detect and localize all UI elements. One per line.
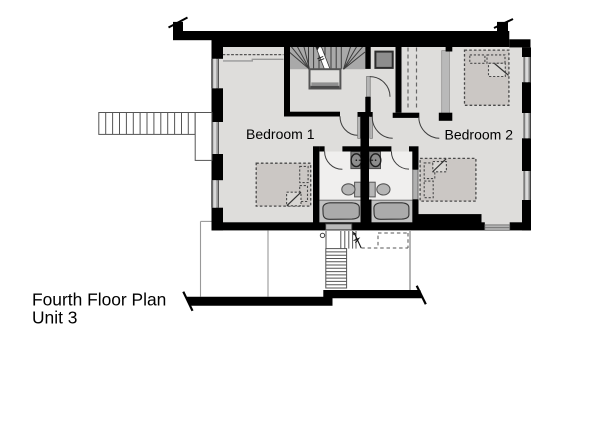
svg-text:Fourth Floor Plan: Fourth Floor Plan: [32, 290, 166, 310]
svg-text:Unit 3: Unit 3: [32, 308, 77, 328]
svg-text:Bedroom 1: Bedroom 1: [246, 126, 315, 142]
svg-text:Bedroom 2: Bedroom 2: [445, 127, 514, 143]
